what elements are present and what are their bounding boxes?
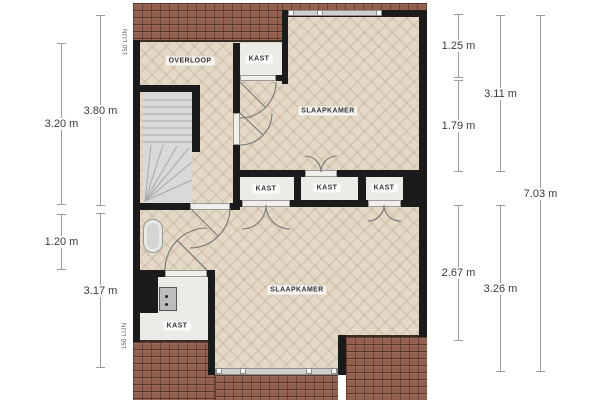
roof-top-right bbox=[282, 3, 427, 10]
room-label-kast-top: KAST bbox=[246, 55, 273, 64]
dim-right-inner-2: 1.79 m bbox=[458, 80, 459, 172]
dim-label: 3.11 m bbox=[481, 88, 520, 100]
roof-bottom-left bbox=[133, 342, 215, 400]
door-opening-kast-mid-1 bbox=[242, 200, 290, 207]
knee-wall-line-top bbox=[133, 40, 288, 42]
window-bottom bbox=[215, 368, 338, 375]
door-opening-kast-mid-2 bbox=[305, 170, 337, 177]
wall-stairs-north bbox=[135, 85, 200, 92]
window-top bbox=[288, 10, 382, 16]
dim-label: 3.80 m bbox=[81, 105, 121, 117]
knee-wall-line-bottom-right bbox=[346, 335, 427, 337]
dim-label: 3.20 m bbox=[42, 118, 82, 130]
door-opening-kast-mid-3 bbox=[368, 200, 401, 207]
sink-basin bbox=[147, 223, 159, 249]
wall-dormer-right bbox=[338, 335, 346, 375]
wall-kast-row-east-block bbox=[403, 170, 419, 207]
dim-label: 3.26 m bbox=[481, 283, 521, 295]
window-post bbox=[331, 368, 337, 374]
roof-bottom-middle bbox=[215, 375, 338, 400]
dim-right-outer-1: 7.03 m bbox=[540, 15, 541, 372]
dim-left-outer-1: 3.20 m bbox=[61, 43, 62, 205]
room-label-overloop: OVERLOOP bbox=[166, 57, 215, 66]
room-label-kast-bottom: KAST bbox=[164, 322, 191, 331]
sink bbox=[143, 219, 163, 253]
appliance bbox=[159, 287, 177, 311]
door-opening-hall-bedroom bbox=[190, 203, 230, 210]
window-post bbox=[240, 368, 246, 374]
dim-right-mid-1: 3.11 m bbox=[500, 15, 501, 172]
dim-label: 3.17 m bbox=[81, 285, 121, 297]
window-post bbox=[216, 368, 222, 374]
room-label-kast-mid-2: KAST bbox=[314, 184, 341, 193]
room-label-slaapkamer-bottom: SLAAPKAMER bbox=[267, 286, 326, 295]
staircase bbox=[143, 92, 192, 203]
dim-left-outer-2: 1.20 m bbox=[61, 214, 62, 270]
floor-plan-canvas: OVERLOOP KAST SLAAPKAMER KAST KAST KAST … bbox=[0, 0, 600, 400]
dim-label: 1.20 m bbox=[42, 236, 82, 248]
window-post bbox=[376, 10, 382, 16]
roof-top-left bbox=[133, 3, 288, 40]
dim-right-mid-2: 3.26 m bbox=[500, 205, 501, 372]
window-post bbox=[306, 368, 312, 374]
roof-bottom-right bbox=[346, 337, 427, 400]
room-label-kast-mid-1: KAST bbox=[253, 185, 280, 194]
wall-kast-top-east bbox=[282, 10, 288, 84]
dim-right-inner-1: 1.25 m bbox=[458, 14, 459, 78]
annotation-150-lijn-bottom: 150 LIJN bbox=[121, 314, 129, 358]
wall-kast-row-sep2 bbox=[358, 170, 366, 207]
dim-label: 2.67 m bbox=[439, 267, 479, 279]
room-label-slaapkamer-top: SLAAPKAMER bbox=[298, 107, 357, 116]
dim-label: 1.79 m bbox=[439, 120, 479, 132]
door-opening-overloop-bedroom bbox=[233, 113, 240, 145]
annotation-150-lijn-top: 150 LIJN bbox=[122, 20, 130, 64]
wall-stairs-east bbox=[192, 85, 200, 152]
knee-wall-line-bottom-left bbox=[133, 340, 215, 342]
dim-label: 7.03 m bbox=[521, 188, 561, 200]
dim-right-inner-3: 2.67 m bbox=[458, 205, 459, 341]
wall-kast-row-sep1 bbox=[294, 170, 301, 207]
door-opening-kast-top bbox=[240, 75, 276, 81]
wall-kast-bottom-east bbox=[208, 270, 215, 375]
dim-left-inner-2: 3.17 m bbox=[100, 213, 101, 368]
window-post bbox=[317, 10, 323, 16]
room-label-kast-mid-3: KAST bbox=[371, 184, 398, 193]
door-opening-kast-bottom bbox=[165, 270, 207, 277]
dim-left-inner-1: 3.80 m bbox=[100, 15, 101, 206]
wall-exterior-right bbox=[419, 10, 427, 337]
dim-label: 1.25 m bbox=[439, 40, 479, 52]
window-post bbox=[288, 10, 294, 16]
chimney-block bbox=[140, 270, 158, 313]
